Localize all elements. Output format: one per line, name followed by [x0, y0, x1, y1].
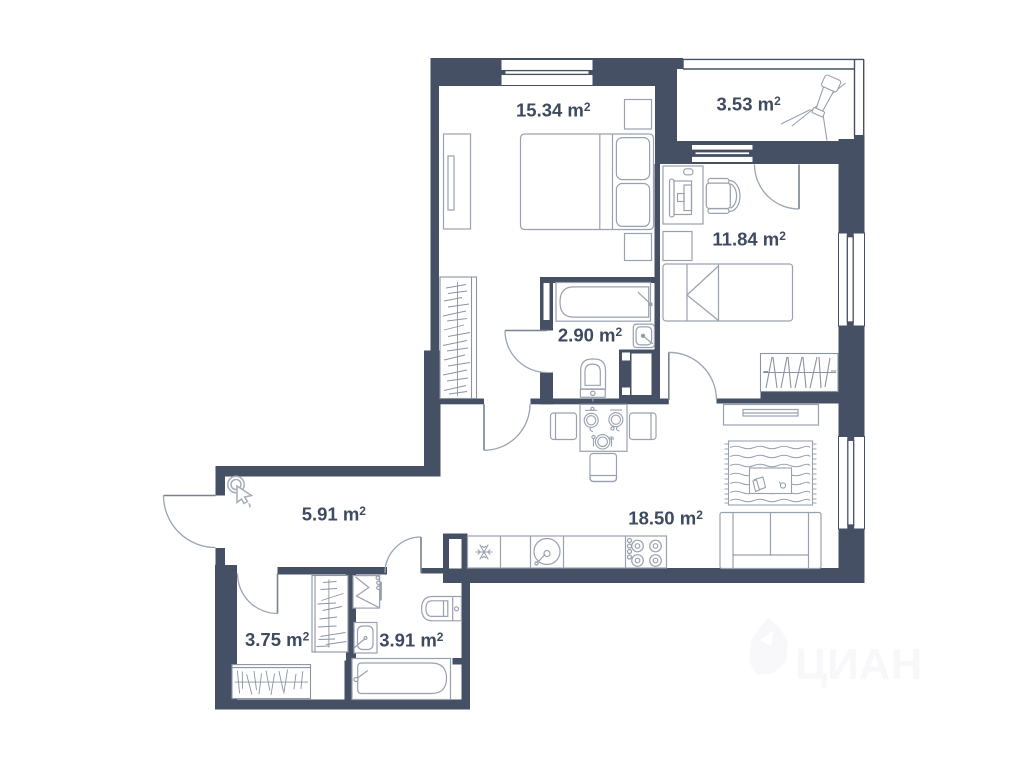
- svg-text:5.91 m2: 5.91 m2: [302, 504, 367, 525]
- svg-text:2.90 m2: 2.90 m2: [558, 325, 623, 346]
- svg-text:11.84 m2: 11.84 m2: [712, 229, 786, 250]
- svg-text:3.75 m2: 3.75 m2: [245, 629, 310, 650]
- svg-text:18.50 m2: 18.50 m2: [628, 508, 703, 529]
- svg-text:ЦИАН: ЦИАН: [795, 640, 922, 689]
- svg-text:3.53 m2: 3.53 m2: [717, 94, 782, 115]
- svg-text:3.91 m2: 3.91 m2: [379, 630, 444, 651]
- svg-text:15.34 m2: 15.34 m2: [516, 99, 591, 120]
